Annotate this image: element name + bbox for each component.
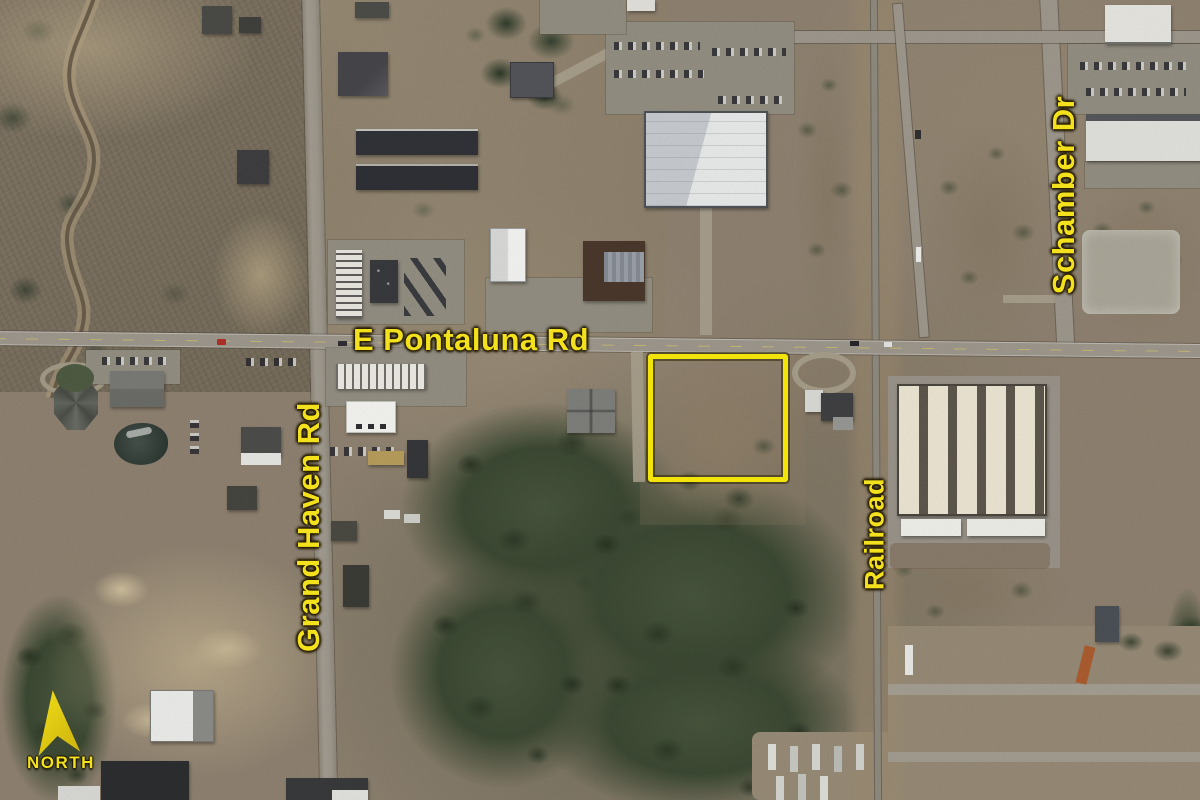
- north-arrow-label: NORTH: [27, 753, 95, 773]
- noise-overlay: [0, 0, 1200, 800]
- highlighted-parcel: [648, 354, 788, 482]
- road-label-schamber: Schamber Dr: [1046, 96, 1082, 294]
- road-label-pontaluna: E Pontaluna Rd: [353, 322, 589, 358]
- railroad-label: Railroad: [860, 478, 891, 590]
- road-label-grand-haven: Grand Haven Rd: [291, 402, 327, 652]
- aerial-map: E Pontaluna Rd Grand Haven Rd Railroad S…: [0, 0, 1200, 800]
